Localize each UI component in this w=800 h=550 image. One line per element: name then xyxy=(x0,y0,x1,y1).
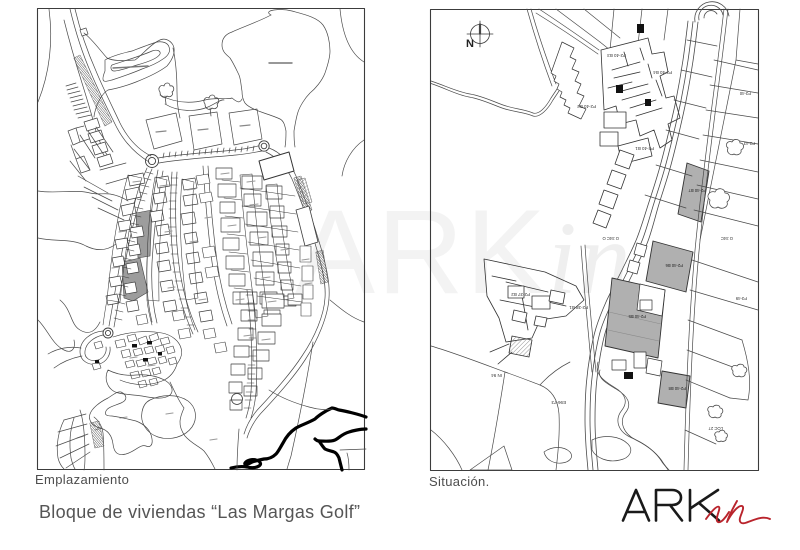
svg-text:P2-37 B2: P2-37 B2 xyxy=(511,292,530,297)
svg-text:N: N xyxy=(466,38,474,50)
svg-text:P2-40 B3: P2-40 B3 xyxy=(607,53,626,58)
svg-text:P2-40 B6: P2-40 B6 xyxy=(665,263,683,268)
svg-text:IN 94: IN 94 xyxy=(491,373,502,378)
svg-text:E96-73: E96-73 xyxy=(551,400,566,405)
svg-text:P2-40 B2: P2-40 B2 xyxy=(577,104,596,109)
svg-text:O 34C O: O 34C O xyxy=(602,236,619,241)
svg-text:P3-43: P3-43 xyxy=(743,141,755,146)
svg-text:P2-38 B1: P2-38 B1 xyxy=(569,305,588,310)
svg-text:P2-40 B4: P2-40 B4 xyxy=(653,70,672,75)
svg-text:P2-40 B8: P2-40 B8 xyxy=(668,386,686,391)
svg-text:P2-40 B5: P2-40 B5 xyxy=(628,314,646,319)
svg-text:P2-40 B1: P2-40 B1 xyxy=(635,146,654,151)
svg-text:P3-49: P3-49 xyxy=(735,296,747,301)
svg-text:O 34C: O 34C xyxy=(721,236,733,241)
svg-text:P2-40 B7: P2-40 B7 xyxy=(688,188,706,193)
svg-text:P3-40: P3-40 xyxy=(739,91,751,96)
